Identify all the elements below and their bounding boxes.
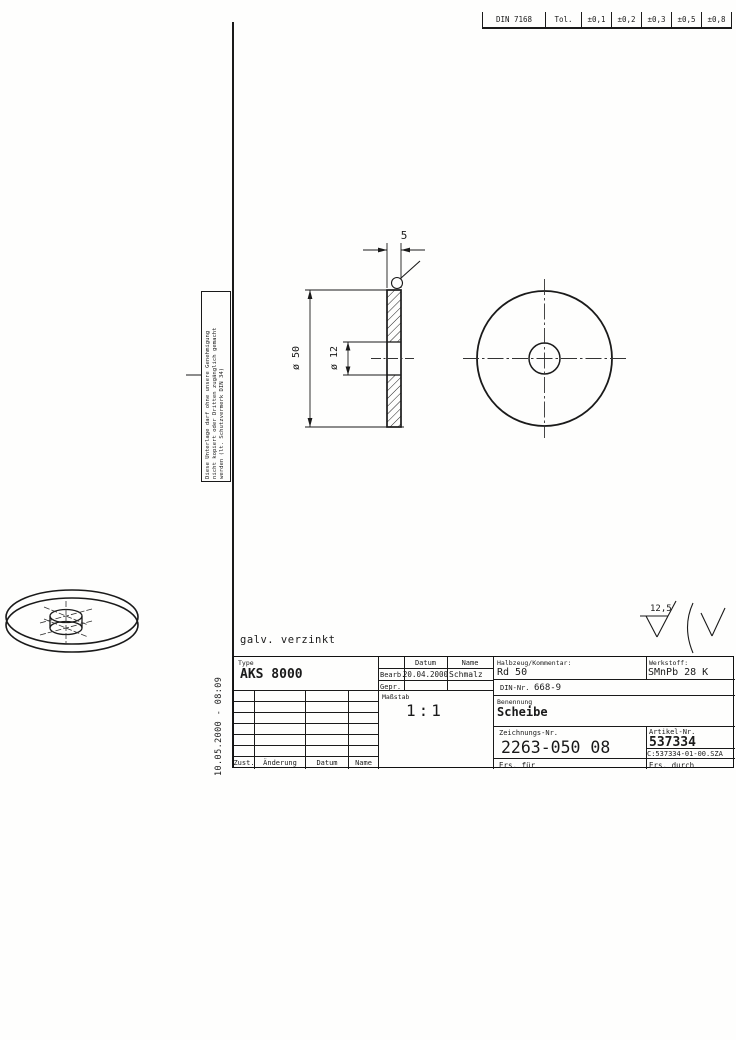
type-value: AKS 8000 — [240, 667, 303, 682]
name-header: Name — [447, 657, 493, 668]
revision-col-datum: Datum — [306, 756, 349, 769]
tolerance-strip: DIN 7168 Tol. ±0,1 ±0,2 ±0,3 ±0,5 ±0,8 — [482, 12, 732, 29]
plot-stamp: 10.05.2000 - 08:09 — [214, 657, 224, 776]
revision-empty-cell — [306, 734, 349, 745]
tolerance-cell: DIN 7168 — [483, 12, 546, 27]
revision-empty-cell — [255, 745, 306, 756]
din-label: DIN-Nr. — [500, 684, 530, 692]
revision-empty-cell — [234, 745, 255, 756]
revision-col-zust: Zust. — [234, 756, 255, 769]
revision-empty-cell — [255, 723, 306, 734]
ers-fuer-label: Ers. für — [499, 761, 535, 770]
revision-empty-cell — [306, 690, 349, 701]
halbzeug-label: Halbzeug/Kommentar: — [497, 659, 571, 667]
revision-empty-cell — [349, 734, 378, 745]
revision-empty-cell — [349, 723, 378, 734]
isometric-view — [6, 590, 138, 652]
artikel-value: 537334 — [649, 735, 696, 750]
revision-empty-cell — [234, 701, 255, 712]
section-view — [305, 243, 425, 427]
revision-empty-cell — [234, 723, 255, 734]
drawing-graphics — [0, 0, 736, 1040]
revision-empty-cell — [306, 723, 349, 734]
revision-empty-cell — [255, 701, 306, 712]
halbzeug-value: Rd 50 — [497, 667, 527, 678]
notice-line: werden (lt. Schutzvermerk DIN 34) — [219, 293, 226, 479]
revision-empty-cell — [255, 712, 306, 723]
bearb-datum: 20.04.2000 — [404, 668, 447, 680]
bearb-label: Bearb. — [380, 671, 405, 679]
gepr-label: Gepr. — [380, 683, 401, 691]
thickness-dimension-label: 5 — [394, 229, 414, 242]
bearb-name: Schmalz — [449, 670, 483, 679]
machining-symbol — [392, 261, 421, 289]
revision-empty-cell — [255, 734, 306, 745]
outer-diameter-label: ø 50 — [291, 342, 302, 374]
revision-empty-cell — [255, 690, 306, 701]
title-block: Type AKS 8000 Zust. Änderung Datum Name … — [233, 656, 734, 768]
werkstoff-label: Werkstoff: — [649, 659, 688, 667]
massstab-value: 1:1 — [406, 701, 444, 720]
notice-line: Diese Unterlage darf ohne unsere Genehmi… — [205, 293, 212, 479]
tolerance-cell: ±0,2 — [612, 12, 642, 27]
revision-empty-cell — [349, 701, 378, 712]
finish-note: galv. verzinkt — [240, 634, 336, 646]
revision-empty-cell — [234, 712, 255, 723]
massstab-label: Maßstab — [382, 693, 409, 701]
type-label: Type — [238, 659, 254, 667]
benennung-value: Scheibe — [497, 705, 548, 719]
notice-line: nicht kopiert oder Dritten zugänglich ge… — [212, 293, 219, 479]
revision-empty-cell — [306, 745, 349, 756]
tolerance-cell: Tol. — [546, 12, 582, 27]
datum-header: Datum — [404, 657, 447, 668]
tolerance-cell: ±0,8 — [702, 12, 732, 27]
zeichnung-label: Zeichnungs-Nr. — [499, 729, 558, 737]
drawing-sheet: DIN 7168 Tol. ±0,1 ±0,2 ±0,3 ±0,5 ±0,8 D… — [0, 0, 736, 1040]
revision-empty-cell — [349, 745, 378, 756]
revision-empty-cell — [306, 712, 349, 723]
tolerance-cell: ±0,3 — [642, 12, 672, 27]
revision-empty-cell — [234, 690, 255, 701]
tolerance-cell: ±0,5 — [672, 12, 702, 27]
protection-notice-text: Diese Unterlage darf ohne unsere Genehmi… — [205, 293, 226, 479]
revision-col-aenderung: Änderung — [255, 756, 306, 769]
revision-empty-cell — [234, 734, 255, 745]
tolerance-cell: ±0,1 — [582, 12, 612, 27]
revision-table: Zust. Änderung Datum Name — [234, 690, 378, 769]
surface-roughness-value: 12,5 — [650, 604, 672, 614]
din-value: 668-9 — [534, 683, 561, 693]
inner-diameter-label: ø 12 — [329, 340, 340, 376]
artikel-path: C:537334-01-00.SZA — [647, 750, 723, 758]
revision-col-name: Name — [349, 756, 378, 769]
revision-empty-cell — [349, 690, 378, 701]
zeichnung-value: 2263-050 08 — [501, 738, 610, 757]
revision-empty-cell — [306, 701, 349, 712]
revision-empty-cell — [349, 712, 378, 723]
werkstoff-value: SMnPb 28 K — [648, 667, 708, 678]
ers-durch-label: Ers. durch — [649, 761, 694, 770]
front-view — [463, 279, 626, 438]
